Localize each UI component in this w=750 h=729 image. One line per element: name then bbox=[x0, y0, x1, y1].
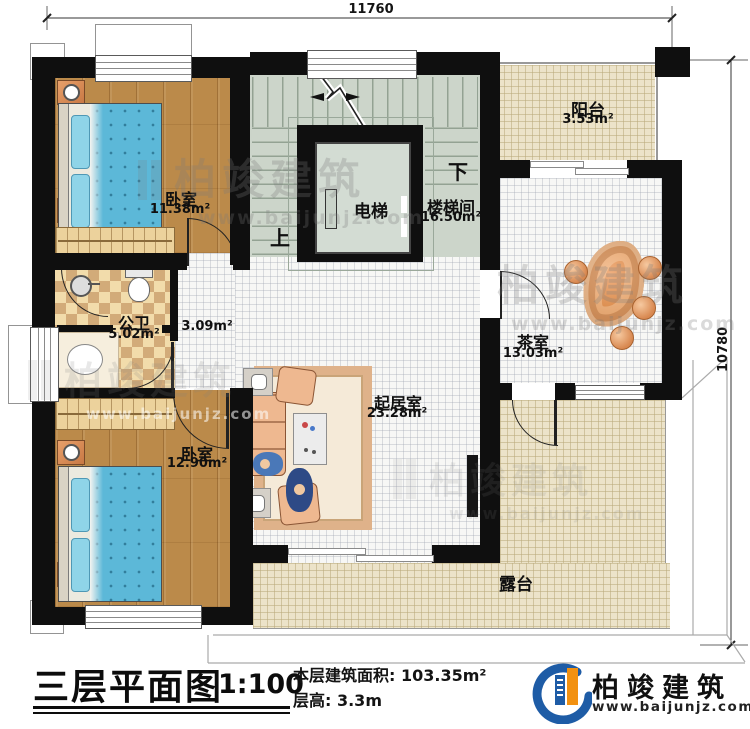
window-tearoom-terrace bbox=[575, 385, 645, 400]
drawing-title: 三层平面图 bbox=[33, 658, 223, 710]
wall-segment bbox=[200, 607, 253, 625]
room-area-tearoom: 13.03m² bbox=[503, 346, 563, 361]
drawing-scale: 1:100 bbox=[218, 669, 304, 700]
wall-segment bbox=[662, 160, 682, 388]
wall-corner-block bbox=[655, 47, 690, 77]
wall-segment bbox=[480, 318, 500, 563]
room-area-balcony: 3.53m² bbox=[562, 112, 613, 127]
room-area-bedroom1: 11.38m² bbox=[150, 202, 210, 217]
room-label-elevator: 电梯 bbox=[354, 197, 388, 222]
room-area-hallway: 3.09m² bbox=[181, 319, 232, 334]
elevator-counterweight bbox=[325, 189, 337, 229]
wall-segment bbox=[233, 253, 250, 270]
wall-segment bbox=[32, 57, 55, 327]
wall-segment bbox=[432, 545, 492, 563]
company-logo-icon bbox=[530, 662, 592, 724]
sliding-door-terrace-leaf bbox=[356, 555, 434, 562]
elevator-door-slit bbox=[401, 218, 407, 237]
wall-segment bbox=[415, 52, 480, 75]
floor-area-note: 本层建筑面积: 103.35m² bbox=[293, 662, 486, 686]
window-bathroom bbox=[30, 327, 59, 402]
stair-direction-up: 上 bbox=[270, 222, 290, 251]
wall-segment bbox=[32, 400, 55, 625]
bathroom-partition bbox=[57, 325, 113, 332]
dimension-right: 10780 bbox=[716, 327, 731, 372]
room-area-bathroom: 5.02m² bbox=[108, 327, 159, 342]
title-underline bbox=[33, 706, 290, 709]
floor-plan-canvas: 卧室 11.38m² 楼梯间 16.50m² 电梯 阳台 3.53m² 公卫 5… bbox=[0, 0, 750, 729]
room-area-bedroom2: 12.90m² bbox=[167, 456, 227, 471]
wall-segment bbox=[555, 383, 575, 400]
wall-segment bbox=[480, 160, 500, 270]
tv-panel bbox=[467, 455, 478, 517]
sliding-door-terrace-leaf bbox=[288, 548, 366, 555]
window-bedroom1 bbox=[95, 55, 192, 82]
wall-segment bbox=[230, 388, 253, 625]
room-area-living: 23.28m² bbox=[367, 406, 427, 421]
wall-segment bbox=[640, 383, 682, 400]
sliding-door-balcony-leaf bbox=[530, 161, 584, 168]
wall-segment bbox=[250, 52, 307, 75]
sliding-door-balcony-leaf bbox=[575, 168, 629, 175]
wall-segment bbox=[162, 325, 174, 333]
room-area-stairwell: 16.50m² bbox=[421, 210, 481, 225]
room-label-terrace: 露台 bbox=[499, 570, 533, 595]
wall-segment bbox=[55, 388, 175, 398]
company-website: www.baijunjz.com bbox=[592, 699, 750, 715]
wall-segment bbox=[235, 545, 288, 563]
window-bedroom2 bbox=[85, 605, 202, 629]
wall-segment bbox=[32, 57, 95, 78]
window-stairwell bbox=[307, 50, 417, 79]
dimension-top: 11760 bbox=[348, 2, 393, 17]
wall-segment bbox=[230, 57, 250, 265]
stair-direction-down: 下 bbox=[448, 156, 468, 185]
floor-height-note: 层高: 3.3m bbox=[293, 687, 382, 711]
wall-segment bbox=[32, 607, 85, 625]
title-underline bbox=[33, 712, 290, 714]
wall-segment bbox=[32, 253, 187, 270]
elevator-door-slit bbox=[401, 196, 407, 213]
